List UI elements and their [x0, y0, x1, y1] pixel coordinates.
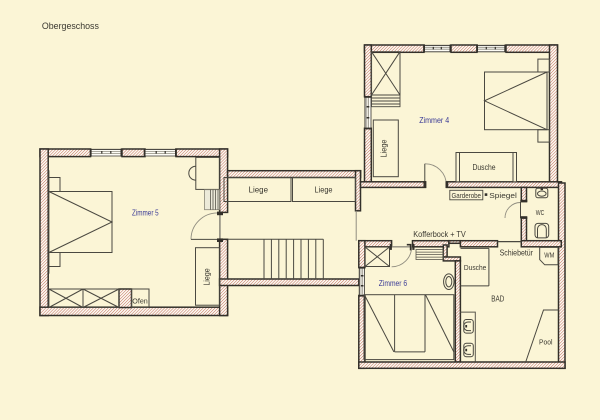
svg-text:Liege: Liege	[202, 268, 211, 285]
svg-text:WC: WC	[536, 208, 545, 217]
svg-text:WM: WM	[544, 250, 554, 259]
svg-text:Zimmer 6: Zimmer 6	[379, 278, 408, 288]
svg-text:Garderobe: Garderobe	[452, 191, 482, 200]
svg-text:Liege: Liege	[379, 140, 388, 158]
svg-text:Pool: Pool	[539, 338, 553, 347]
svg-text:Spiegel: Spiegel	[489, 191, 517, 200]
svg-text:Zimmer 5: Zimmer 5	[132, 207, 159, 217]
svg-text:BAD: BAD	[491, 294, 504, 303]
svg-text:Ofen: Ofen	[132, 298, 148, 305]
svg-text:Dusche: Dusche	[464, 263, 486, 272]
svg-text:Schiebetür: Schiebetür	[500, 249, 534, 258]
svg-text:Zimmer 4: Zimmer 4	[419, 115, 449, 125]
svg-text:Liege: Liege	[249, 185, 269, 194]
svg-text:Dusche: Dusche	[473, 163, 496, 172]
svg-text:Obergeschoss: Obergeschoss	[42, 20, 99, 31]
svg-text:Kofferbock + TV: Kofferbock + TV	[413, 229, 466, 239]
svg-text:Liege: Liege	[315, 185, 334, 194]
